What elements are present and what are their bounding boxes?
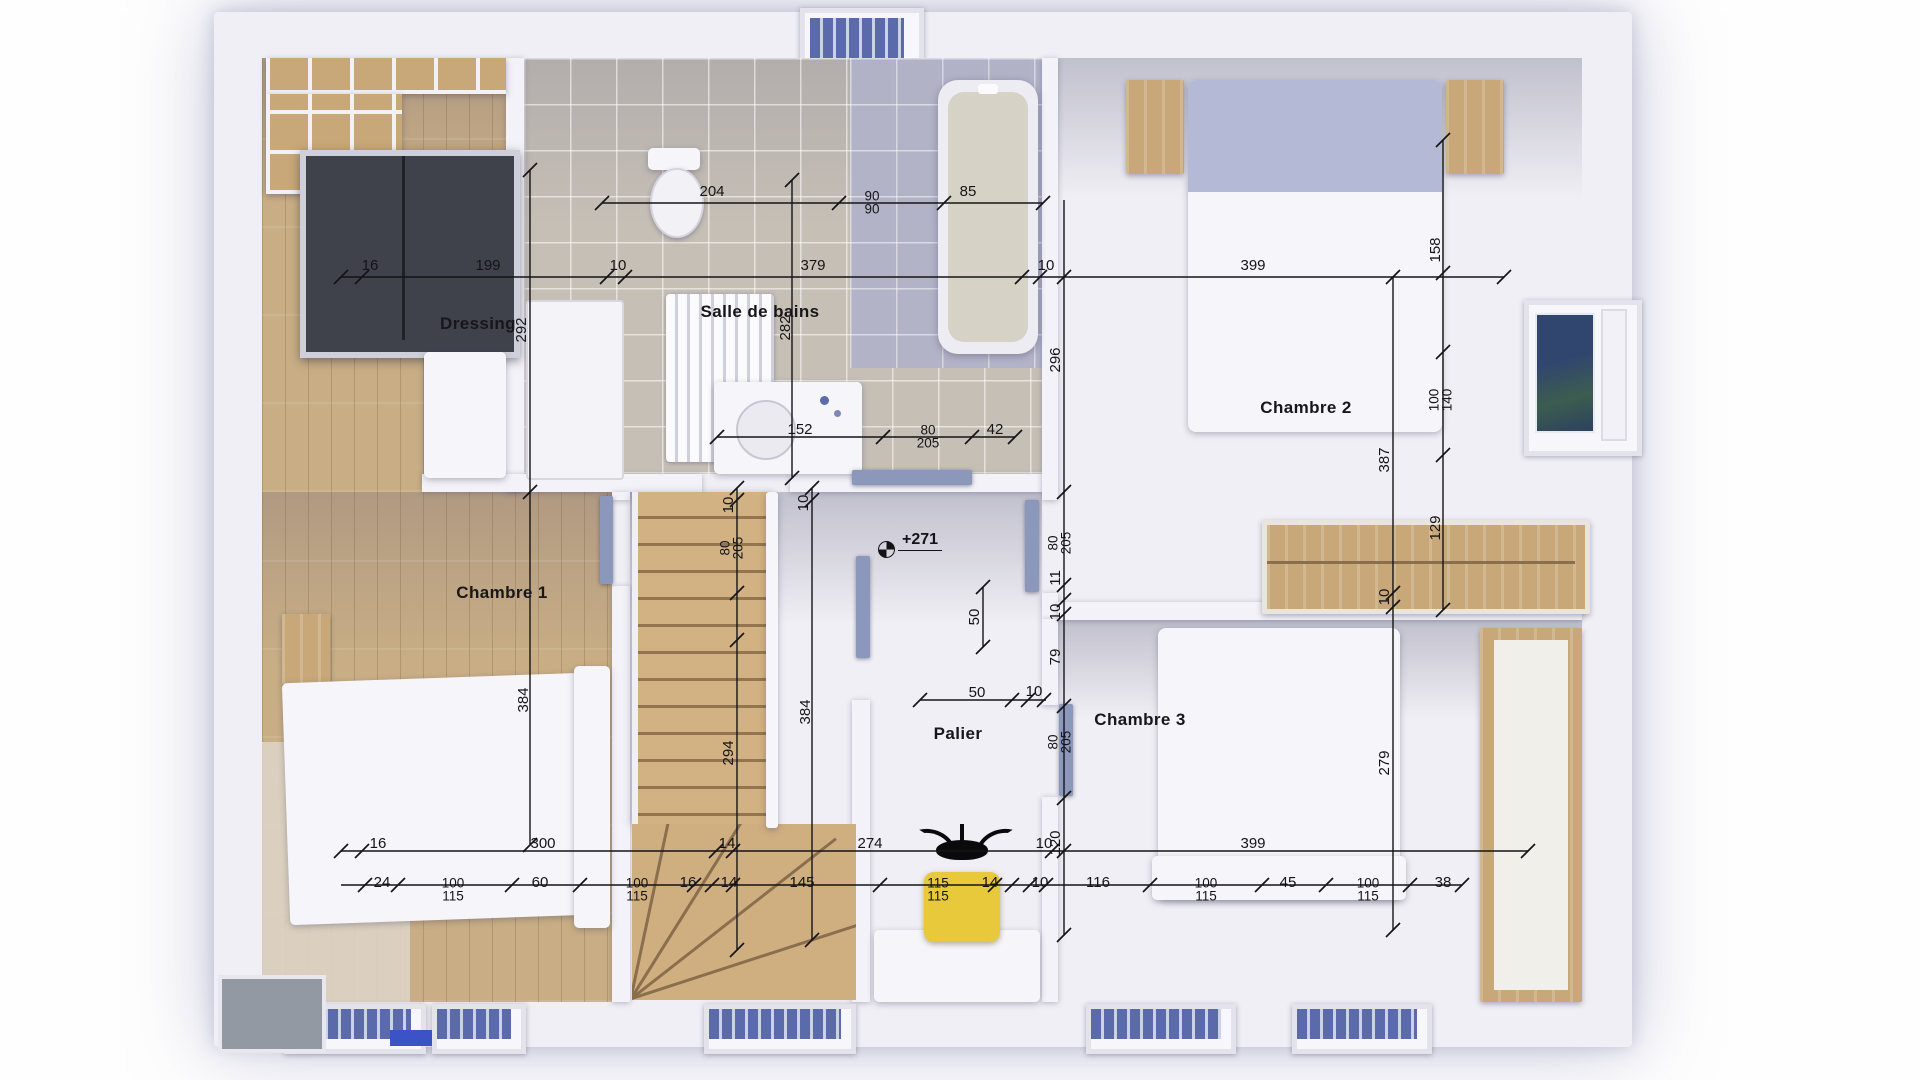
wall-bedroom1-stair: [612, 586, 630, 1002]
bedroom1-bed: [282, 673, 590, 925]
bottom-window-4-glass: [1091, 1009, 1221, 1039]
staircase-flight: [632, 492, 770, 824]
wall-center-east-pier: [1042, 619, 1058, 705]
bedroom1-headboard: [574, 666, 610, 928]
room-label-bedroom1: Chambre 1: [456, 583, 547, 603]
bedroom2-nightstand-right: [1446, 80, 1504, 174]
shower-tray: [526, 300, 624, 480]
bedroom2-pillows: [1188, 80, 1442, 192]
bedroom2-nightstand-left: [1126, 80, 1184, 174]
chandelier-stem: [960, 824, 964, 844]
dressing-shelf-strip: [266, 58, 506, 94]
toilet-bowl: [650, 168, 704, 238]
room-label-landing: Palier: [934, 724, 983, 744]
bedroom3-headboard: [1152, 856, 1406, 900]
bedroom1-door: [600, 496, 613, 584]
wall-center-east-upper: [1042, 58, 1058, 500]
bedroom2-door: [1025, 500, 1039, 592]
floor-plan-canvas: 2049090851619910379103991528020542501016…: [0, 0, 1920, 1080]
bottom-window-2: [432, 1004, 526, 1054]
staircase-winder: [632, 824, 856, 1000]
bathtub-faucet: [978, 84, 998, 94]
bottom-window-5: [1292, 1004, 1432, 1054]
bathtub: [938, 80, 1038, 354]
bottom-window-5-glass: [1297, 1009, 1417, 1039]
window-glass-greenery: [1535, 313, 1595, 433]
wall-bedroom1-stair-stub: [612, 492, 630, 500]
wardrobe-door-divider: [402, 156, 405, 340]
bottom-window-2-glass: [437, 1009, 511, 1039]
bathroom-accessory-blue2: [834, 410, 841, 417]
staircase-handrail: [766, 492, 778, 828]
bedroom1-nightstand: [282, 614, 330, 684]
bedroom3-sideboard-top: [1494, 640, 1568, 990]
bottom-window-4: [1086, 1004, 1236, 1054]
room-label-dressing: Dressing: [440, 314, 516, 334]
chandelier: [922, 816, 1002, 862]
bathroom-door: [852, 470, 972, 485]
corner-window-well: [218, 975, 326, 1053]
level-marker-text: +271: [898, 531, 942, 551]
bedroom3-door: [1059, 704, 1073, 796]
window-shutter: [1601, 309, 1627, 441]
bedroom2-bed: [1188, 80, 1442, 432]
bedroom3-sideboard: [1480, 628, 1582, 1002]
wall-center-east-mid: [1042, 593, 1058, 619]
room-label-bedroom2: Chambre 2: [1260, 398, 1351, 418]
level-marker-icon: [878, 541, 895, 558]
yellow-stool: [924, 872, 1000, 942]
toilet-tank: [648, 148, 700, 170]
bathroom-accessory-blue: [820, 396, 829, 405]
wall-center-east-lower: [1042, 797, 1058, 1002]
room-label-bathroom: Salle de bains: [701, 302, 820, 322]
chandelier-arm-right: [975, 823, 1013, 859]
bedroom2-window-bay: [1524, 300, 1642, 456]
bathroom-vanity: [714, 382, 862, 474]
bathtub-interior: [948, 92, 1028, 342]
bottom-window-3-glass: [709, 1009, 841, 1039]
bedroom2-closet: [1262, 520, 1590, 614]
bottom-window-3: [704, 1004, 856, 1054]
blue-glass-patch: [390, 1030, 432, 1046]
room-label-bedroom3: Chambre 3: [1094, 710, 1185, 730]
washbasin: [736, 400, 796, 460]
dressing-dresser: [424, 352, 506, 478]
closet-shelf-line: [1267, 561, 1575, 564]
stairwell-door: [856, 556, 870, 658]
